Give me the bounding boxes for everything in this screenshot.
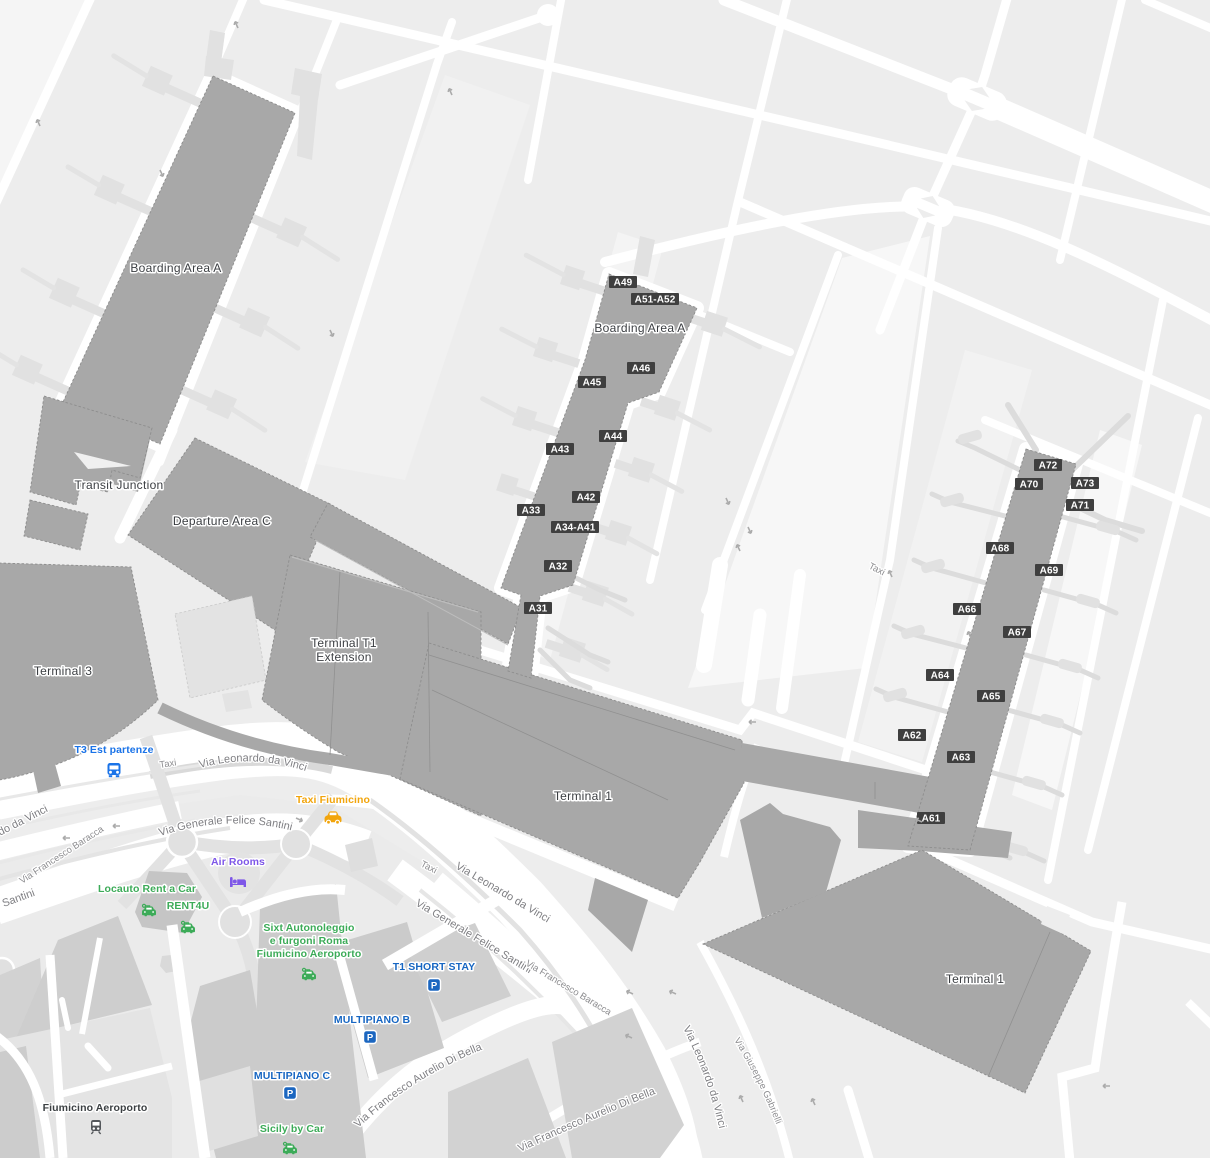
svg-text:T3 Est partenze: T3 Est partenze [74, 744, 153, 756]
svg-text:A42: A42 [577, 493, 596, 504]
svg-text:A65: A65 [982, 692, 1001, 703]
svg-text:A32: A32 [549, 562, 568, 573]
svg-text:A71: A71 [1071, 501, 1090, 512]
svg-text:A34-A41: A34-A41 [555, 523, 596, 534]
svg-text:Air Rooms: Air Rooms [211, 856, 265, 868]
svg-text:A64: A64 [931, 671, 950, 682]
svg-text:A46: A46 [632, 364, 651, 375]
svg-text:Terminal 3: Terminal 3 [34, 664, 92, 678]
svg-text:MULTIPIANO C: MULTIPIANO C [254, 1070, 331, 1082]
svg-text:A66: A66 [958, 605, 977, 616]
svg-text:A31: A31 [529, 604, 548, 615]
svg-text:Fiumicino Aeroporto: Fiumicino Aeroporto [43, 1102, 148, 1114]
svg-text:Departure Area C: Departure Area C [173, 514, 271, 528]
svg-text:Boarding Area A: Boarding Area A [594, 321, 685, 335]
svg-text:A67: A67 [1008, 628, 1027, 639]
svg-text:e furgoni Roma: e furgoni Roma [270, 935, 348, 947]
svg-text:Extension: Extension [316, 650, 371, 664]
svg-text:A61: A61 [922, 814, 941, 825]
svg-text:Terminal 1: Terminal 1 [554, 789, 612, 803]
svg-text:RENT4U: RENT4U [167, 900, 210, 912]
svg-text:A62: A62 [903, 731, 922, 742]
svg-text:A44: A44 [604, 432, 623, 443]
svg-text:Locauto Rent a Car: Locauto Rent a Car [98, 883, 196, 895]
svg-text:A70: A70 [1020, 480, 1039, 491]
svg-text:A43: A43 [551, 445, 570, 456]
svg-text:T1 SHORT STAY: T1 SHORT STAY [393, 961, 475, 973]
svg-text:Sicily by Car: Sicily by Car [260, 1123, 324, 1135]
svg-text:A68: A68 [991, 544, 1010, 555]
svg-text:Fiumicino Aeroporto: Fiumicino Aeroporto [257, 948, 362, 960]
svg-text:Boarding Area A: Boarding Area A [130, 261, 221, 275]
svg-text:Taxi Fiumicino: Taxi Fiumicino [296, 794, 370, 806]
svg-text:A51-A52: A51-A52 [635, 295, 676, 306]
svg-text:A45: A45 [583, 378, 602, 389]
svg-text:A49: A49 [614, 278, 633, 289]
svg-text:Transit Junction: Transit Junction [74, 478, 163, 492]
svg-text:A73: A73 [1076, 479, 1095, 490]
svg-text:A33: A33 [522, 506, 541, 517]
svg-text:Terminal 1: Terminal 1 [946, 972, 1004, 986]
svg-text:A69: A69 [1040, 566, 1059, 577]
svg-text:A72: A72 [1039, 461, 1058, 472]
svg-text:A63: A63 [952, 753, 971, 764]
svg-text:Sixt Autonoleggio: Sixt Autonoleggio [263, 922, 354, 934]
svg-text:Terminal T1: Terminal T1 [311, 636, 377, 650]
svg-text:MULTIPIANO B: MULTIPIANO B [334, 1014, 411, 1026]
